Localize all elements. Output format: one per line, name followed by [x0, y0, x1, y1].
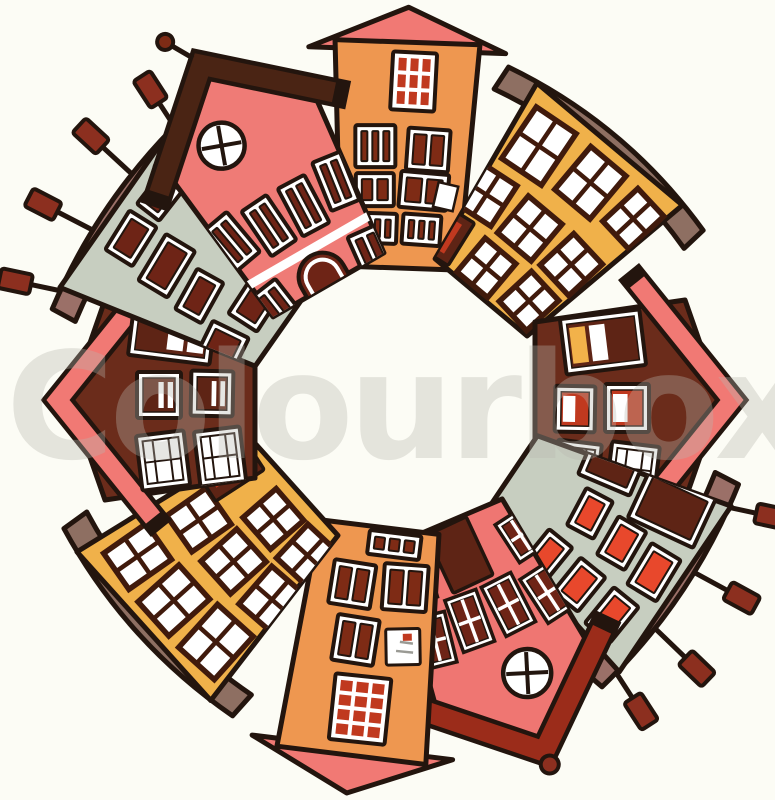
window-tall [367, 530, 422, 560]
window-tall [355, 125, 395, 167]
window-tallopen [398, 171, 459, 212]
window-tall [406, 128, 451, 173]
window-tall [331, 614, 380, 666]
watermark-text: Colourbox [6, 321, 775, 493]
houses-circle-svg: Colourbox [0, 0, 775, 800]
window-note [386, 629, 421, 666]
window-tall [382, 563, 429, 612]
chimney [0, 268, 33, 294]
window-grid [390, 51, 437, 111]
window-grid [329, 673, 392, 744]
window-round [502, 648, 552, 698]
illustration-canvas: Colourbox [0, 0, 775, 800]
window-tall [401, 214, 441, 247]
window-tall [328, 559, 376, 609]
